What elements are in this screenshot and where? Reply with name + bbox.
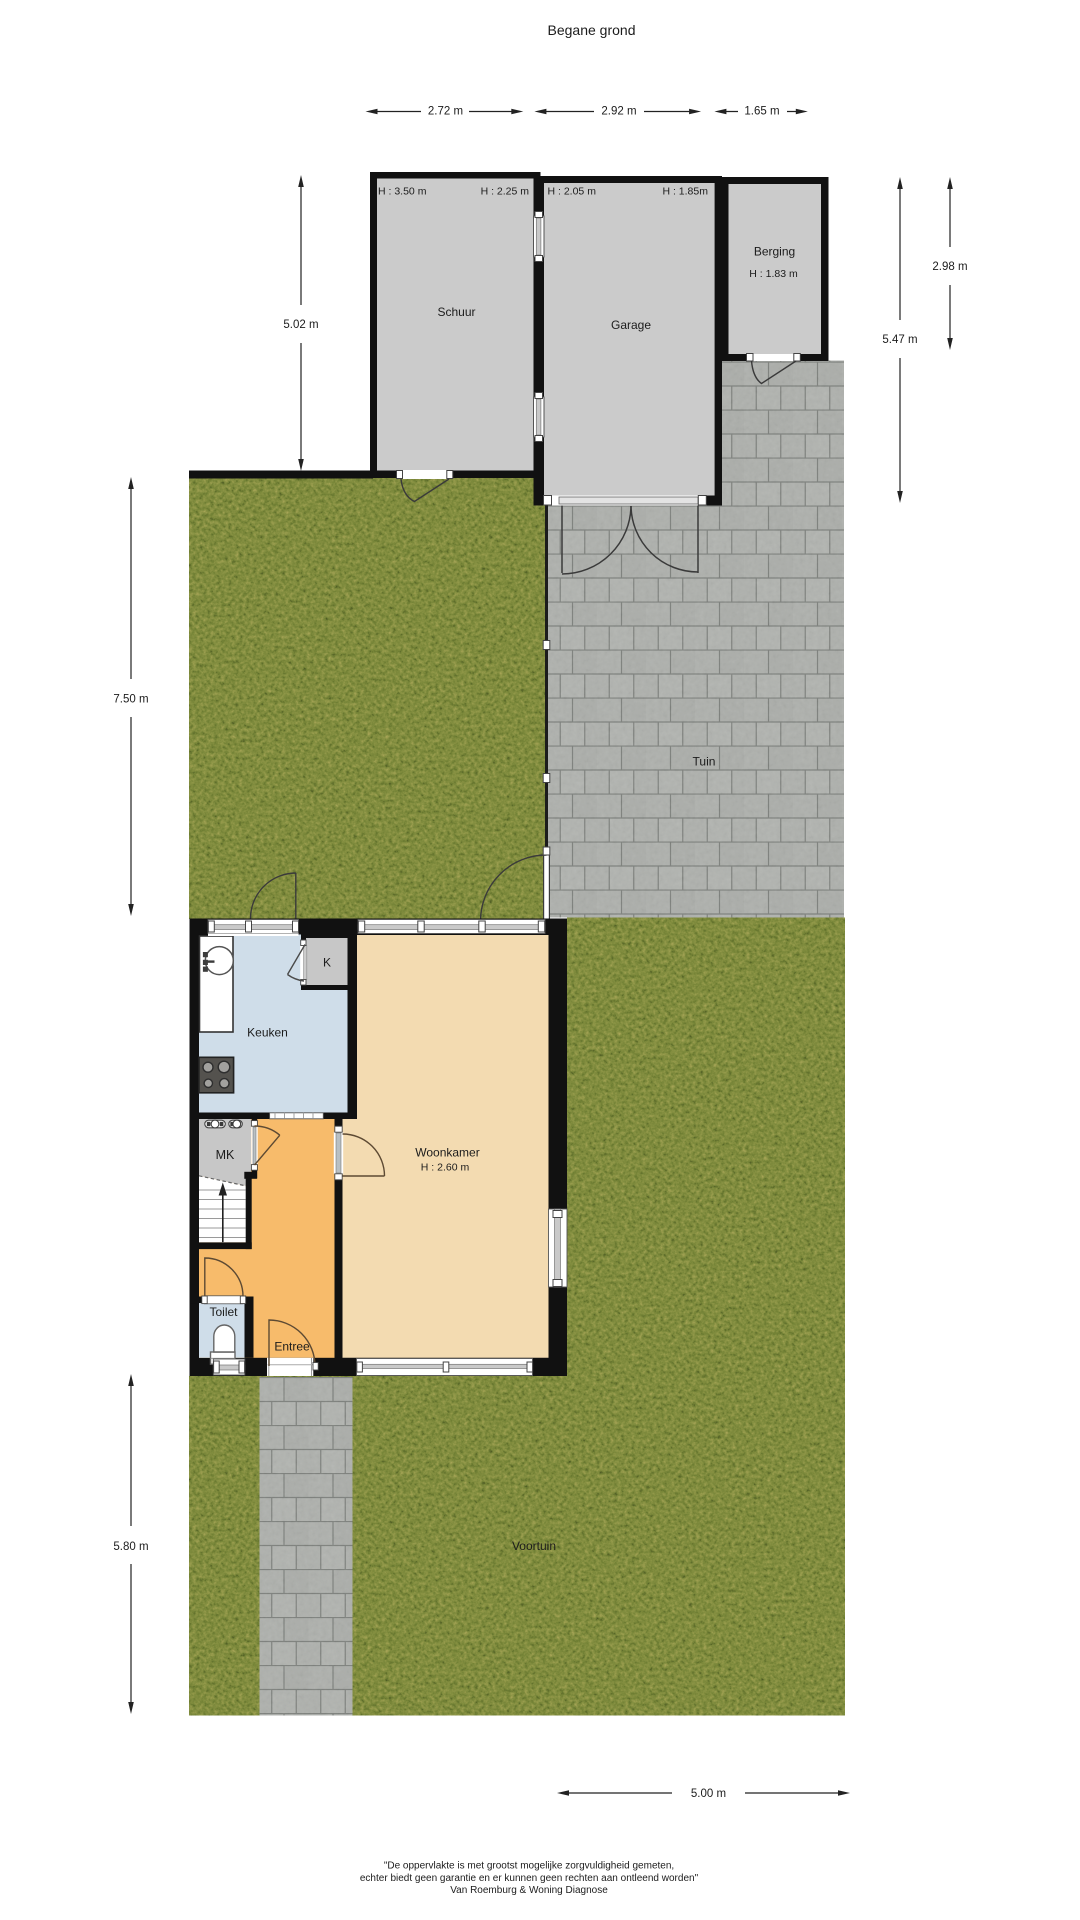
svg-text:H : 2.05 m: H : 2.05 m xyxy=(548,186,597,198)
svg-text:2.98 m: 2.98 m xyxy=(932,261,967,273)
svg-text:K: K xyxy=(323,956,331,970)
svg-text:Berging: Berging xyxy=(754,245,795,259)
svg-text:echter biedt geen garantie en: echter biedt geen garantie en er kunnen … xyxy=(360,1873,699,1884)
svg-text:Toilet: Toilet xyxy=(209,1305,238,1319)
svg-text:Schuur: Schuur xyxy=(437,305,475,319)
svg-text:H : 2.25 m: H : 2.25 m xyxy=(481,186,530,198)
svg-text:H : 1.83 m: H : 1.83 m xyxy=(749,268,798,280)
svg-text:"De oppervlakte is met grootst: "De oppervlakte is met grootst mogelijke… xyxy=(384,1861,674,1872)
svg-text:Van Roemburg & Woning Diagnose: Van Roemburg & Woning Diagnose xyxy=(450,1885,608,1896)
svg-text:Keuken: Keuken xyxy=(247,1026,288,1040)
svg-text:MK: MK xyxy=(216,1148,235,1162)
svg-text:7.50 m: 7.50 m xyxy=(113,694,148,706)
svg-text:Voortuin: Voortuin xyxy=(512,1539,556,1553)
svg-text:Tuin: Tuin xyxy=(693,755,716,769)
svg-text:Begane grond: Begane grond xyxy=(548,22,636,38)
svg-text:5.80 m: 5.80 m xyxy=(113,1541,148,1553)
svg-text:1.65 m: 1.65 m xyxy=(744,106,779,118)
svg-text:Garage: Garage xyxy=(611,318,651,332)
svg-text:5.02 m: 5.02 m xyxy=(283,319,318,331)
svg-text:2.72 m: 2.72 m xyxy=(428,106,463,118)
svg-text:H : 3.50 m: H : 3.50 m xyxy=(378,186,427,198)
svg-text:5.47 m: 5.47 m xyxy=(882,334,917,346)
svg-text:Entree: Entree xyxy=(274,1340,310,1354)
svg-text:H : 2.60 m: H : 2.60 m xyxy=(421,1162,470,1174)
svg-text:H : 1.85m: H : 1.85m xyxy=(662,186,708,198)
svg-text:5.00 m: 5.00 m xyxy=(691,1788,726,1800)
svg-text:Woonkamer: Woonkamer xyxy=(415,1146,479,1160)
svg-text:2.92 m: 2.92 m xyxy=(601,106,636,118)
